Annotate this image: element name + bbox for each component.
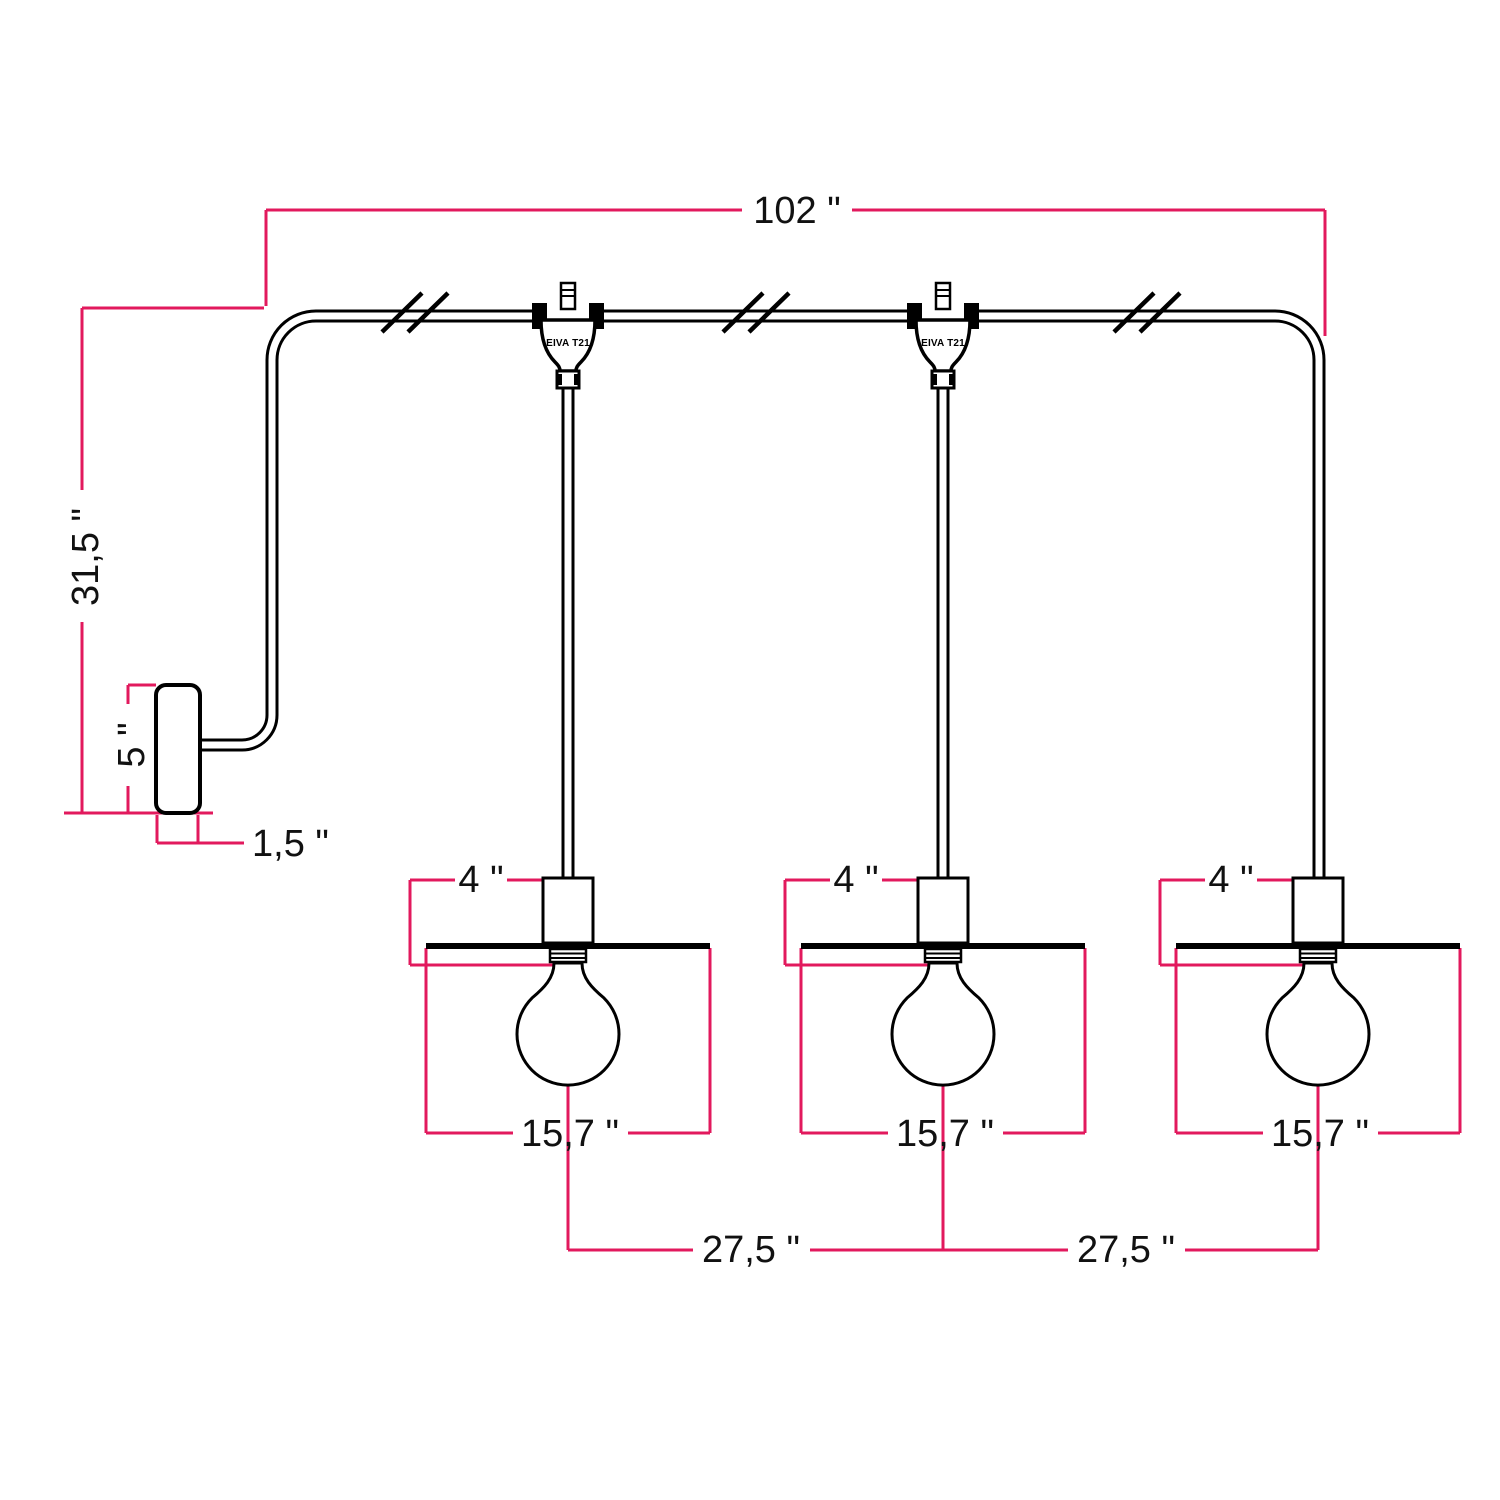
dim-wall-drop-label: 31,5 " <box>65 508 107 606</box>
socket-threads <box>1300 949 1336 962</box>
dim-plate-height-label: 5 " <box>111 722 153 767</box>
dim-socket-label-2: 4 " <box>833 859 878 901</box>
pendant-lamp-1 <box>426 878 710 1085</box>
pendant-lamp-2 <box>801 878 1085 1085</box>
dim-spacing-label-2: 27,5 " <box>1077 1229 1175 1271</box>
dim-shade-label-3: 15,7 " <box>1271 1113 1369 1155</box>
t-connector-1: EIVA T21 <box>532 283 604 388</box>
supply-cable <box>198 312 1319 883</box>
dim-plate-depth-line <box>157 815 244 843</box>
wall-plate <box>156 685 200 813</box>
lamp-socket <box>543 878 593 943</box>
lamp-socket <box>918 878 968 943</box>
bulb <box>892 963 994 1085</box>
connector-label: EIVA T21 <box>921 338 965 349</box>
dim-shade-label-2: 15,7 " <box>896 1113 994 1155</box>
bulb <box>1267 963 1369 1085</box>
dim-shade-label-1: 15,7 " <box>521 1113 619 1155</box>
drawing-page: EIVA T21 EIVA T21 <box>0 0 1500 1500</box>
technical-drawing: EIVA T21 EIVA T21 <box>0 0 1500 1500</box>
dim-socket-label-1: 4 " <box>458 859 503 901</box>
connector-label: EIVA T21 <box>546 338 590 349</box>
t-connector-2: EIVA T21 <box>907 283 979 388</box>
lamp-socket <box>1293 878 1343 943</box>
dim-plate-depth-label: 1,5 " <box>252 823 329 865</box>
bulb <box>517 963 619 1085</box>
socket-threads <box>925 949 961 962</box>
pendant-lamp-3 <box>1176 878 1460 1085</box>
dim-spacing-label-1: 27,5 " <box>702 1229 800 1271</box>
socket-threads <box>550 949 586 962</box>
dim-cable-run-label: 102 " <box>753 190 840 232</box>
main-cable <box>198 316 1319 883</box>
dim-socket-label-3: 4 " <box>1208 859 1253 901</box>
